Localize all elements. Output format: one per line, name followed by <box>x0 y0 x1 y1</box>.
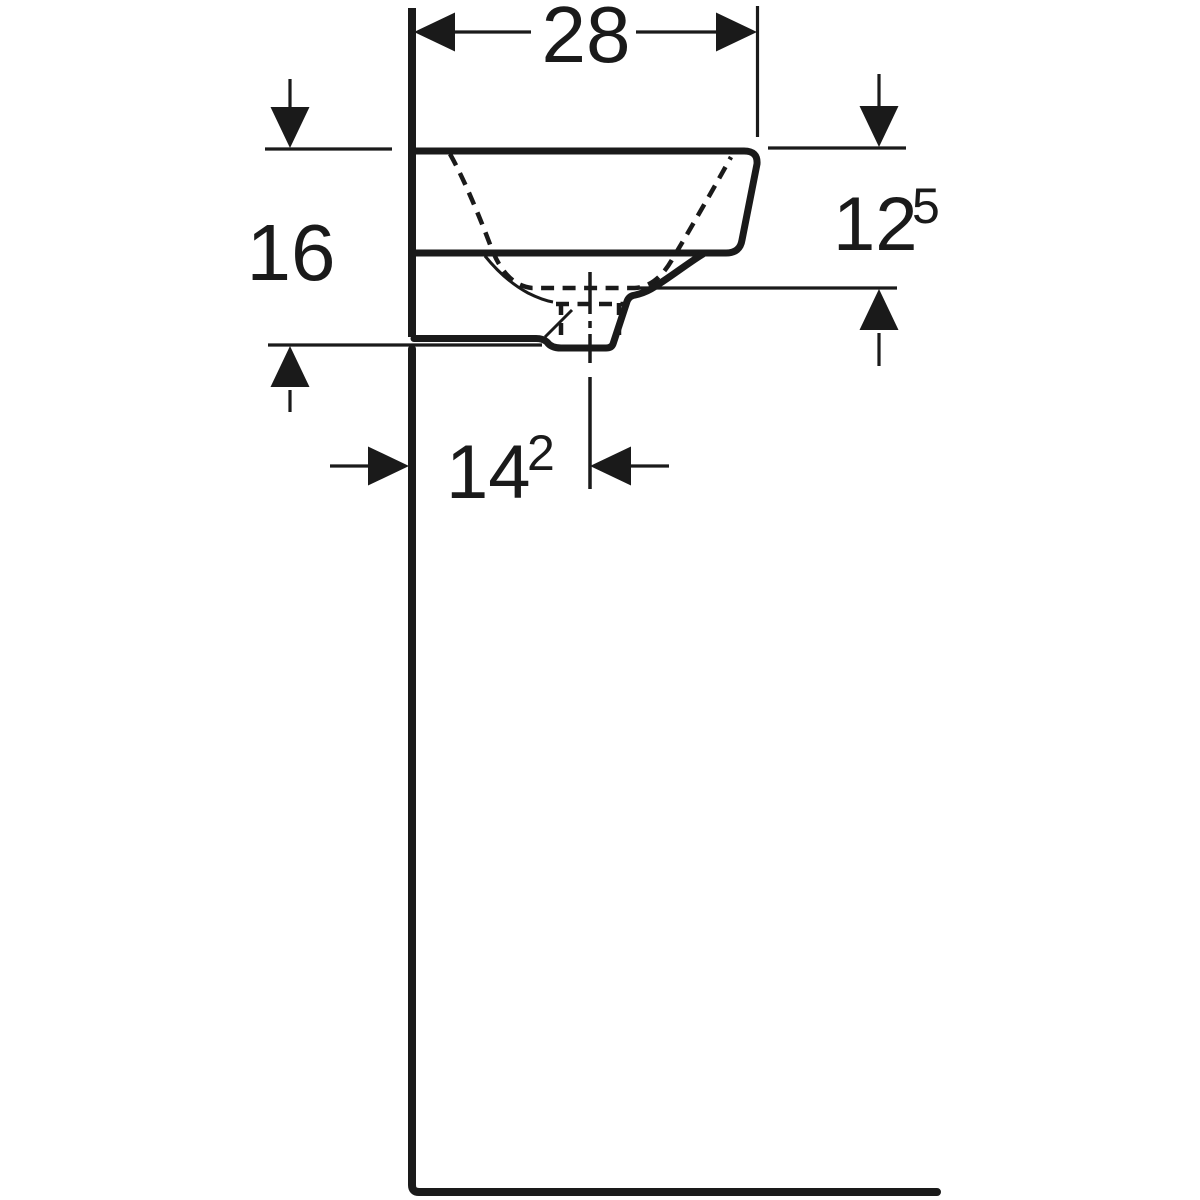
top-width-arrow-left <box>414 13 455 52</box>
bowl-hidden-edge <box>450 154 731 288</box>
bottom-offset-superscript: 2 <box>527 425 555 481</box>
bottom-offset-arrow-left <box>368 447 409 486</box>
bottom-offset-label: 14 <box>446 430 531 515</box>
top-width-arrow-right <box>716 13 757 52</box>
basin-body-outline <box>414 151 757 253</box>
technical-drawing-page: 28 16 12 5 14 2 <box>0 0 1200 1200</box>
dimension-arrowheads <box>271 13 899 486</box>
bottom-offset-arrow-right <box>590 447 631 486</box>
dimension-labels: 28 16 12 5 14 2 <box>247 0 940 515</box>
bowl-front-edge <box>485 256 553 302</box>
right-depth-arrow-top <box>860 106 899 147</box>
drain-detail-line <box>545 310 572 337</box>
right-depth-arrow-bottom <box>860 289 899 330</box>
basin-underside-outline <box>414 254 703 348</box>
right-depth-superscript: 5 <box>912 178 940 234</box>
right-depth-label: 12 <box>833 182 918 267</box>
left-height-label: 16 <box>247 208 336 297</box>
basin-dimension-drawing: 28 16 12 5 14 2 <box>0 0 1200 1200</box>
left-height-arrow-bottom <box>271 346 310 387</box>
left-height-arrow-top <box>271 107 310 148</box>
top-width-label: 28 <box>542 0 631 79</box>
